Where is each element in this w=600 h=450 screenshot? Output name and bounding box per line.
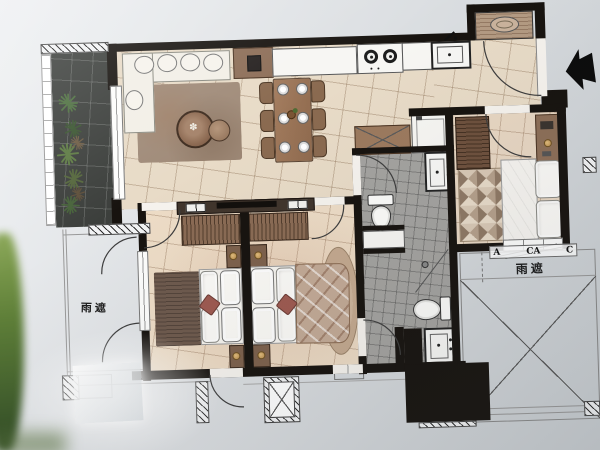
toilet-lower-tank xyxy=(440,296,452,320)
coffee-table-flower: ✽ xyxy=(189,122,198,133)
floorplan-sheet: ✽ xyxy=(0,0,600,450)
left-bed-quilt xyxy=(221,307,242,343)
hatch-under-column xyxy=(419,421,477,429)
stove xyxy=(357,43,404,74)
washing-machine-panel xyxy=(416,116,422,120)
window-opening-bottom xyxy=(333,364,363,374)
left-bedroom-rug xyxy=(154,271,202,346)
dining-chair xyxy=(261,137,276,159)
stove-burner xyxy=(364,49,378,63)
door-opening-bath-lower xyxy=(357,318,366,356)
left-bed-quilt xyxy=(220,270,241,306)
dimension-label-ca: CA xyxy=(526,246,540,256)
entry-direction-arrow-icon xyxy=(564,48,597,92)
dimension-label-c: C xyxy=(566,245,573,255)
structural-column-block xyxy=(405,362,491,423)
hatch-post xyxy=(195,381,209,423)
wall-entry-right xyxy=(534,2,545,40)
toilet-upper-tank xyxy=(367,194,393,206)
drain-dot xyxy=(436,171,439,174)
console-accessory xyxy=(186,203,206,213)
desk-cup xyxy=(544,139,552,147)
right-bed-quilt xyxy=(252,307,276,344)
bedroom2-wardrobe xyxy=(455,116,491,170)
door-opening-bath-upper xyxy=(352,155,361,195)
right-bed-quilt xyxy=(251,268,275,305)
left-ledge-lines xyxy=(62,229,71,375)
stove-knob xyxy=(370,68,372,70)
stove-burner xyxy=(383,49,397,63)
dining-chair xyxy=(312,108,327,130)
stove-knob xyxy=(377,67,379,69)
drain-dot xyxy=(437,344,440,347)
bedroom2-pillow xyxy=(536,200,563,239)
bath-vanity-cabinet xyxy=(363,230,406,249)
right-bed-plaid-blanket xyxy=(295,263,350,344)
bedroom2-pillow xyxy=(534,160,561,199)
dining-chair xyxy=(311,80,326,102)
dining-chair xyxy=(313,135,328,157)
hatch-column-inner xyxy=(268,381,295,418)
hatch-right-edge-top xyxy=(582,157,596,173)
dimension-label-a: A xyxy=(493,248,500,258)
console-accessory xyxy=(288,200,308,210)
door-opening-bottom xyxy=(210,368,243,378)
desk-item xyxy=(542,151,551,156)
photo-of-floorplan: { "labels": { "rain_shade_left": "雨遮", "… xyxy=(0,0,600,450)
bedroom2-bed-sheet xyxy=(500,159,539,242)
kitchen-counter xyxy=(402,42,433,71)
desk-item xyxy=(540,121,553,129)
washing-machine-lid xyxy=(416,118,445,148)
door-opening-right-bedroom xyxy=(310,197,344,206)
door-opening-left-bedroom xyxy=(142,202,180,211)
dimension-band: A CA C xyxy=(489,243,577,259)
wall-top-entry xyxy=(466,2,544,12)
bathroom-sink-lower xyxy=(424,327,455,364)
hatch-bottom-left xyxy=(62,375,80,401)
left-bedroom-wardrobe xyxy=(181,214,241,246)
right-bedroom-wardrobe xyxy=(248,212,309,242)
wall-bath-lower-block xyxy=(404,328,423,365)
rain-shade-label-left: 雨遮 xyxy=(81,299,109,316)
dining-chair xyxy=(259,82,274,104)
hatch-column-frame xyxy=(263,376,300,423)
rain-shade-label-right: 雨遮 xyxy=(516,259,547,277)
hatch-right-edge-bottom xyxy=(584,401,600,416)
hatch-balcony-top xyxy=(41,42,109,54)
kitchen-sink xyxy=(431,41,472,70)
door-opening-bedroom2 xyxy=(485,105,530,114)
dining-chair xyxy=(260,110,275,132)
hatch-balcony-bottom xyxy=(88,223,150,236)
entry-door-opening xyxy=(536,38,548,96)
kitchen-sink-drain xyxy=(448,53,451,56)
wall-entry-left-stub xyxy=(466,4,475,40)
kitchen-counter-cabinet xyxy=(272,46,358,77)
tv-set-living xyxy=(247,55,261,71)
